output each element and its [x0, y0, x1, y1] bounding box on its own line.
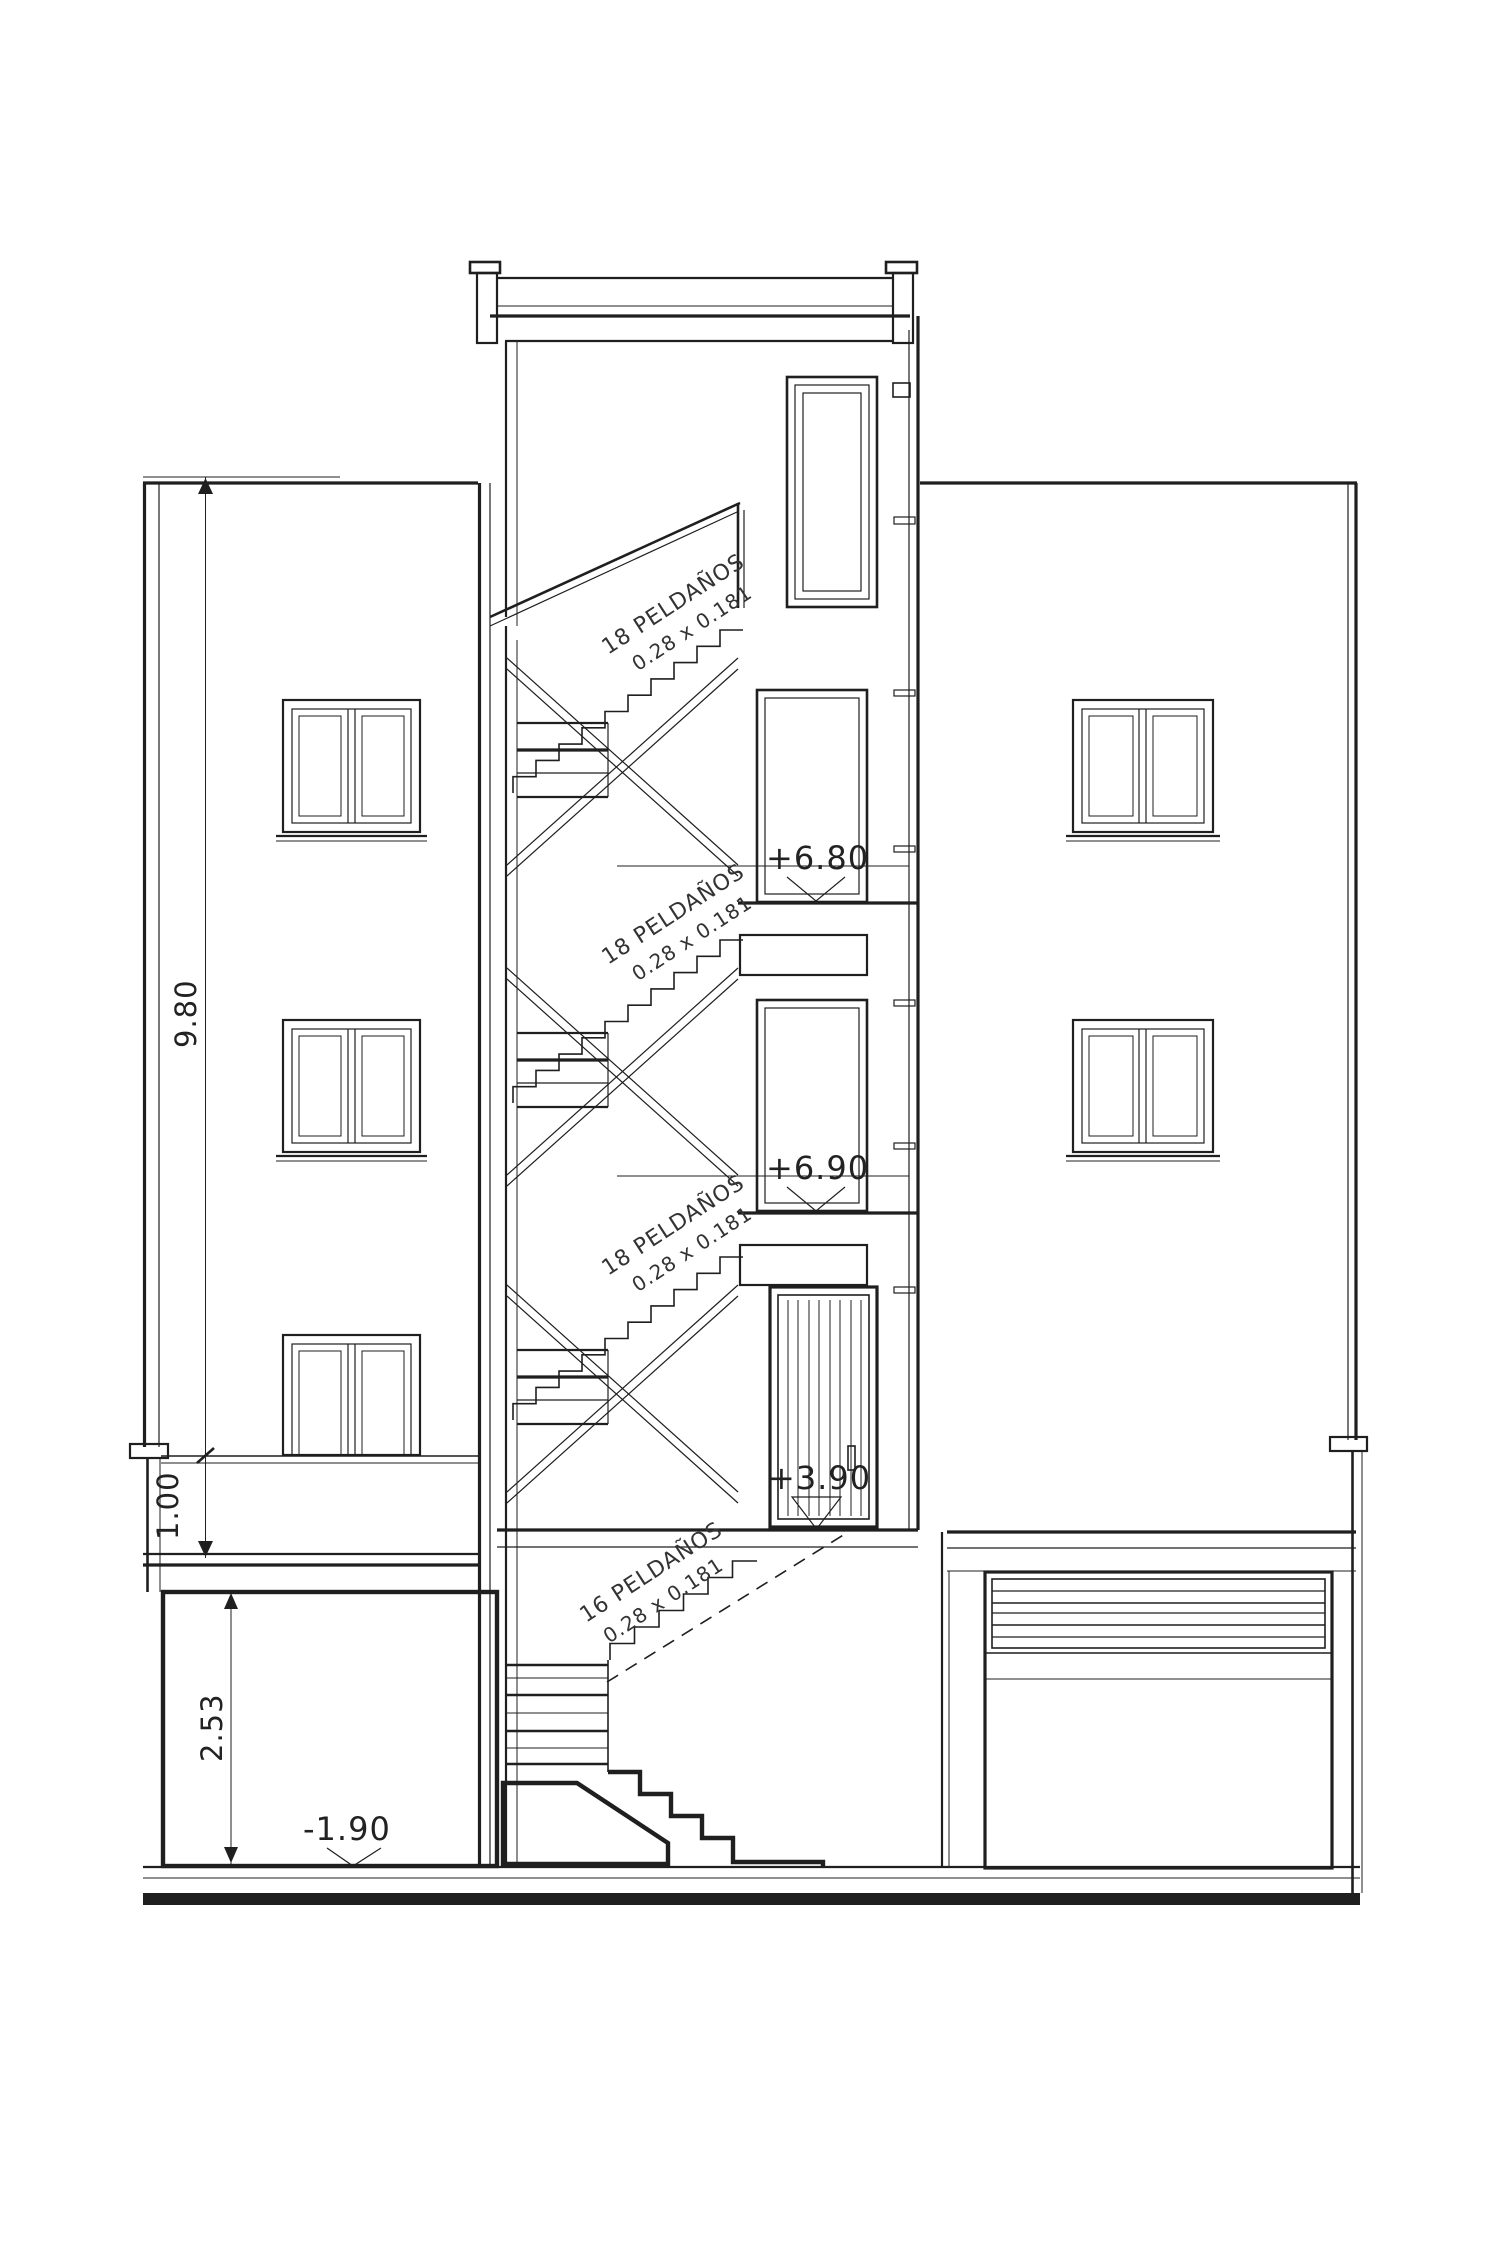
window	[1066, 700, 1220, 841]
level-label: +6.90	[766, 1149, 869, 1187]
right-wing	[920, 483, 1367, 1893]
tall-window	[787, 377, 877, 607]
dimension-basement: 2.53	[195, 1592, 238, 1864]
level-label: -1.90	[303, 1810, 391, 1848]
level-arrow-icon	[787, 1187, 845, 1211]
level-label: +3.90	[768, 1459, 871, 1497]
dimension-label: 2.53	[195, 1693, 229, 1762]
dim-arrow-icon	[224, 1593, 238, 1609]
dim-arrow-icon	[224, 1847, 238, 1863]
stair-flight	[507, 630, 743, 876]
stair-flight	[507, 1257, 743, 1503]
ground-lines	[143, 1867, 1360, 1905]
left-wing	[130, 483, 497, 1866]
stair-note: 16 PELDAÑOS 0.28 x 0.181	[575, 1516, 744, 1653]
window	[276, 700, 427, 841]
dimension-terrace: 1.00	[151, 1471, 185, 1540]
level-label: +6.80	[766, 839, 869, 877]
dimension-total-height: 9.80	[143, 477, 340, 1558]
stair-note: 18 PELDAÑOS 0.28 x 0.181	[597, 548, 766, 685]
roof-parapet	[470, 262, 917, 343]
stair-tower	[470, 262, 918, 1868]
stair-flight	[507, 940, 743, 1186]
dim-arrow-icon	[198, 478, 213, 494]
landing	[517, 1350, 608, 1424]
level-marker-basement: -1.90	[303, 1810, 391, 1866]
level-arrow-icon	[787, 877, 845, 901]
terrace-slab	[143, 1456, 480, 1565]
basement-landing-stack	[506, 1660, 608, 1772]
level-marker-second-floor: +6.90	[766, 1149, 869, 1211]
dimension-label: 1.00	[151, 1471, 185, 1540]
drawing-sheet: 18 PELDAÑOS 0.28 x 0.181 18 PELDAÑOS 0.2…	[0, 0, 1500, 2250]
landing	[517, 723, 608, 797]
level-arrow-icon	[327, 1848, 381, 1866]
section-drawing: 18 PELDAÑOS 0.28 x 0.181 18 PELDAÑOS 0.2…	[0, 0, 1500, 2250]
window	[1066, 1020, 1220, 1161]
dimension-label: 9.80	[169, 979, 203, 1048]
window	[276, 1020, 427, 1161]
basement-step-profile	[608, 1772, 823, 1868]
landing	[517, 1033, 608, 1107]
level-marker-third-floor: +6.80	[766, 839, 869, 901]
garage-door	[985, 1572, 1332, 1868]
french-window	[283, 1335, 420, 1455]
level-triangle-icon	[792, 1497, 841, 1529]
